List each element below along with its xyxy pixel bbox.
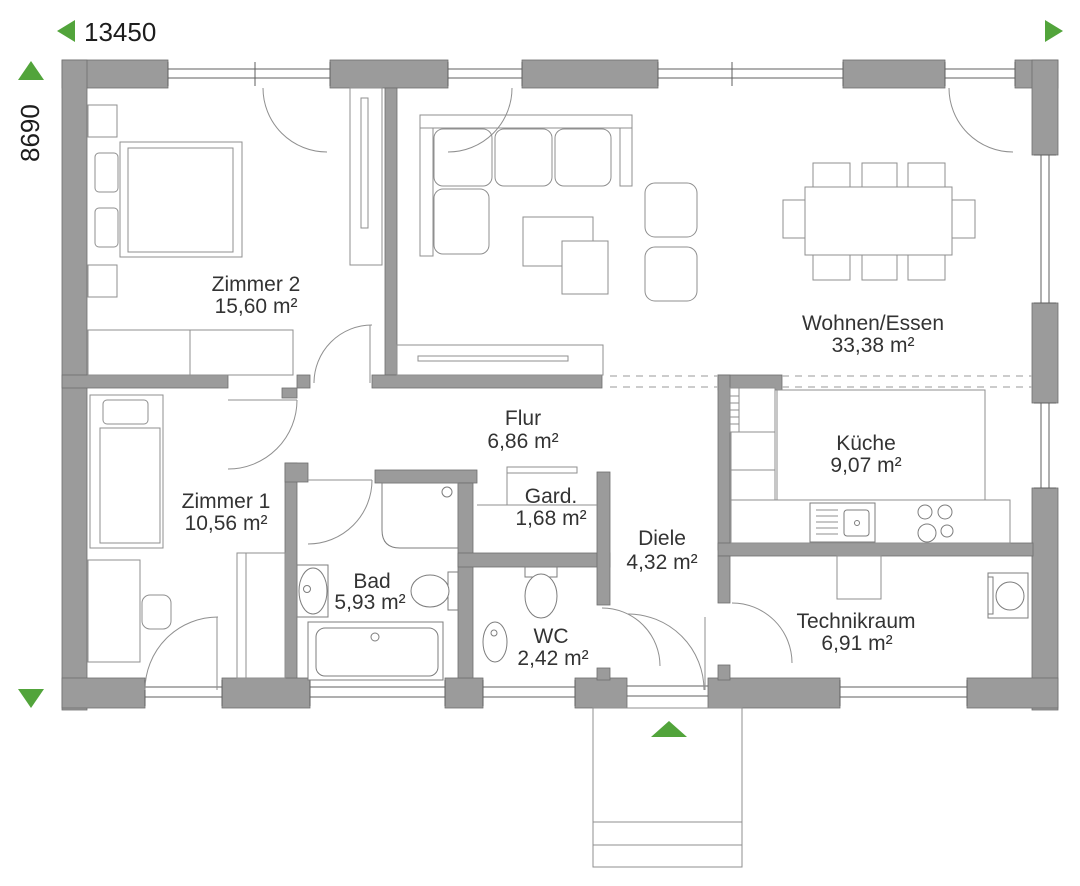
window-kueche-right xyxy=(1034,403,1056,488)
room-area-technikraum: 6,91 m² xyxy=(821,632,892,655)
room-area-wohnen-essen: 33,38 m² xyxy=(832,334,915,357)
shower xyxy=(382,483,458,548)
terrace-door-zimmer1 xyxy=(145,680,222,706)
door-arc-front xyxy=(628,614,704,690)
door-arc-zimmer2 xyxy=(314,325,372,383)
nightstand xyxy=(88,105,117,137)
room-area-diele: 4,32 m² xyxy=(626,551,697,574)
door-arc-zimmer2-terrace xyxy=(263,88,327,152)
door-arc-wc xyxy=(602,608,660,666)
chair xyxy=(862,255,897,280)
zimmer1-furniture xyxy=(88,395,285,678)
chair xyxy=(908,255,945,280)
dim-arrow-right-icon xyxy=(1045,20,1063,42)
sideboard xyxy=(397,345,603,375)
double-bed xyxy=(120,142,242,257)
room-label-bad: Bad xyxy=(353,570,390,593)
front-door-threshold xyxy=(627,686,708,696)
pillow xyxy=(95,208,118,247)
dimension-width-label: 13450 xyxy=(84,17,156,47)
zimmer2-furniture xyxy=(88,88,382,375)
room-area-wc: 2,42 m² xyxy=(517,647,588,670)
kitchen-sink xyxy=(810,503,875,542)
room-label-wc: WC xyxy=(534,625,569,648)
room-area-flur: 6,86 m² xyxy=(487,430,558,453)
pillow xyxy=(95,153,118,192)
pillow xyxy=(103,400,148,424)
window-bad-bottom xyxy=(310,680,445,706)
armchair xyxy=(645,183,697,237)
room-label-zimmer1: Zimmer 1 xyxy=(182,490,271,513)
chair xyxy=(908,163,945,188)
door-arc-terrace2 xyxy=(949,88,1013,152)
window-wohnen-top xyxy=(658,62,843,86)
entrance-arrow-icon xyxy=(651,721,687,737)
dim-arrow-left-icon xyxy=(57,20,75,42)
floor-plan-svg: 13450 8690 Zimmer 2 15,60 m² Zimmer 1 10… xyxy=(0,0,1080,886)
floor-plan-image: 13450 8690 Zimmer 2 15,60 m² Zimmer 1 10… xyxy=(0,0,1080,886)
door-arc-zimmer1 xyxy=(228,400,297,469)
room-area-kueche: 9,07 m² xyxy=(830,454,901,477)
desk xyxy=(88,560,140,662)
room-label-zimmer2: Zimmer 2 xyxy=(212,273,301,296)
open-boundary-dashed xyxy=(610,376,1032,387)
room-area-bad: 5,93 m² xyxy=(334,591,405,614)
chair xyxy=(783,200,805,238)
dimension-height-label: 8690 xyxy=(15,104,45,162)
window-technikraum-bottom xyxy=(840,680,967,706)
room-area-garderobe: 1,68 m² xyxy=(515,507,586,530)
dining-set xyxy=(783,163,975,280)
technikraum-furniture xyxy=(837,556,1028,618)
coffee-table xyxy=(562,241,608,294)
wardrobe xyxy=(237,553,285,678)
chair xyxy=(813,255,850,280)
window-zimmer2-top xyxy=(168,62,330,86)
armchair xyxy=(645,247,697,301)
chair xyxy=(862,163,897,188)
dim-arrow-up-icon xyxy=(18,61,44,80)
bathroom-sink xyxy=(297,565,328,617)
room-label-garderobe: Gard. xyxy=(525,485,578,508)
nightstand xyxy=(88,265,117,297)
room-label-flur: Flur xyxy=(505,407,541,430)
chair xyxy=(952,200,975,238)
room-label-wohnen-essen: Wohnen/Essen xyxy=(802,312,944,335)
dining-table xyxy=(805,187,952,255)
terrace-door-1 xyxy=(448,62,522,86)
room-area-zimmer1: 10,56 m² xyxy=(185,512,268,535)
room-label-diele: Diele xyxy=(638,527,686,550)
room-label-technikraum: Technikraum xyxy=(796,610,915,633)
window-wohnen-right xyxy=(1034,155,1056,303)
toilet xyxy=(411,572,458,610)
toilet xyxy=(525,567,557,618)
tank xyxy=(837,556,881,599)
door-arc-technikraum xyxy=(732,603,792,663)
room-label-kueche: Küche xyxy=(836,432,896,455)
window-wc-bottom xyxy=(483,680,575,706)
tall-wardrobe xyxy=(350,88,382,265)
entrance-porch xyxy=(593,708,742,867)
chair xyxy=(142,595,171,629)
chair xyxy=(813,163,850,188)
dim-arrow-down-icon xyxy=(18,689,44,708)
wc-sink xyxy=(483,622,507,662)
bathtub xyxy=(308,622,443,680)
washing-machine xyxy=(988,573,1028,618)
shelf xyxy=(507,467,577,473)
room-area-zimmer2: 15,60 m² xyxy=(215,295,298,318)
door-arc-bad xyxy=(308,480,372,544)
terrace-door-2 xyxy=(945,62,1015,86)
